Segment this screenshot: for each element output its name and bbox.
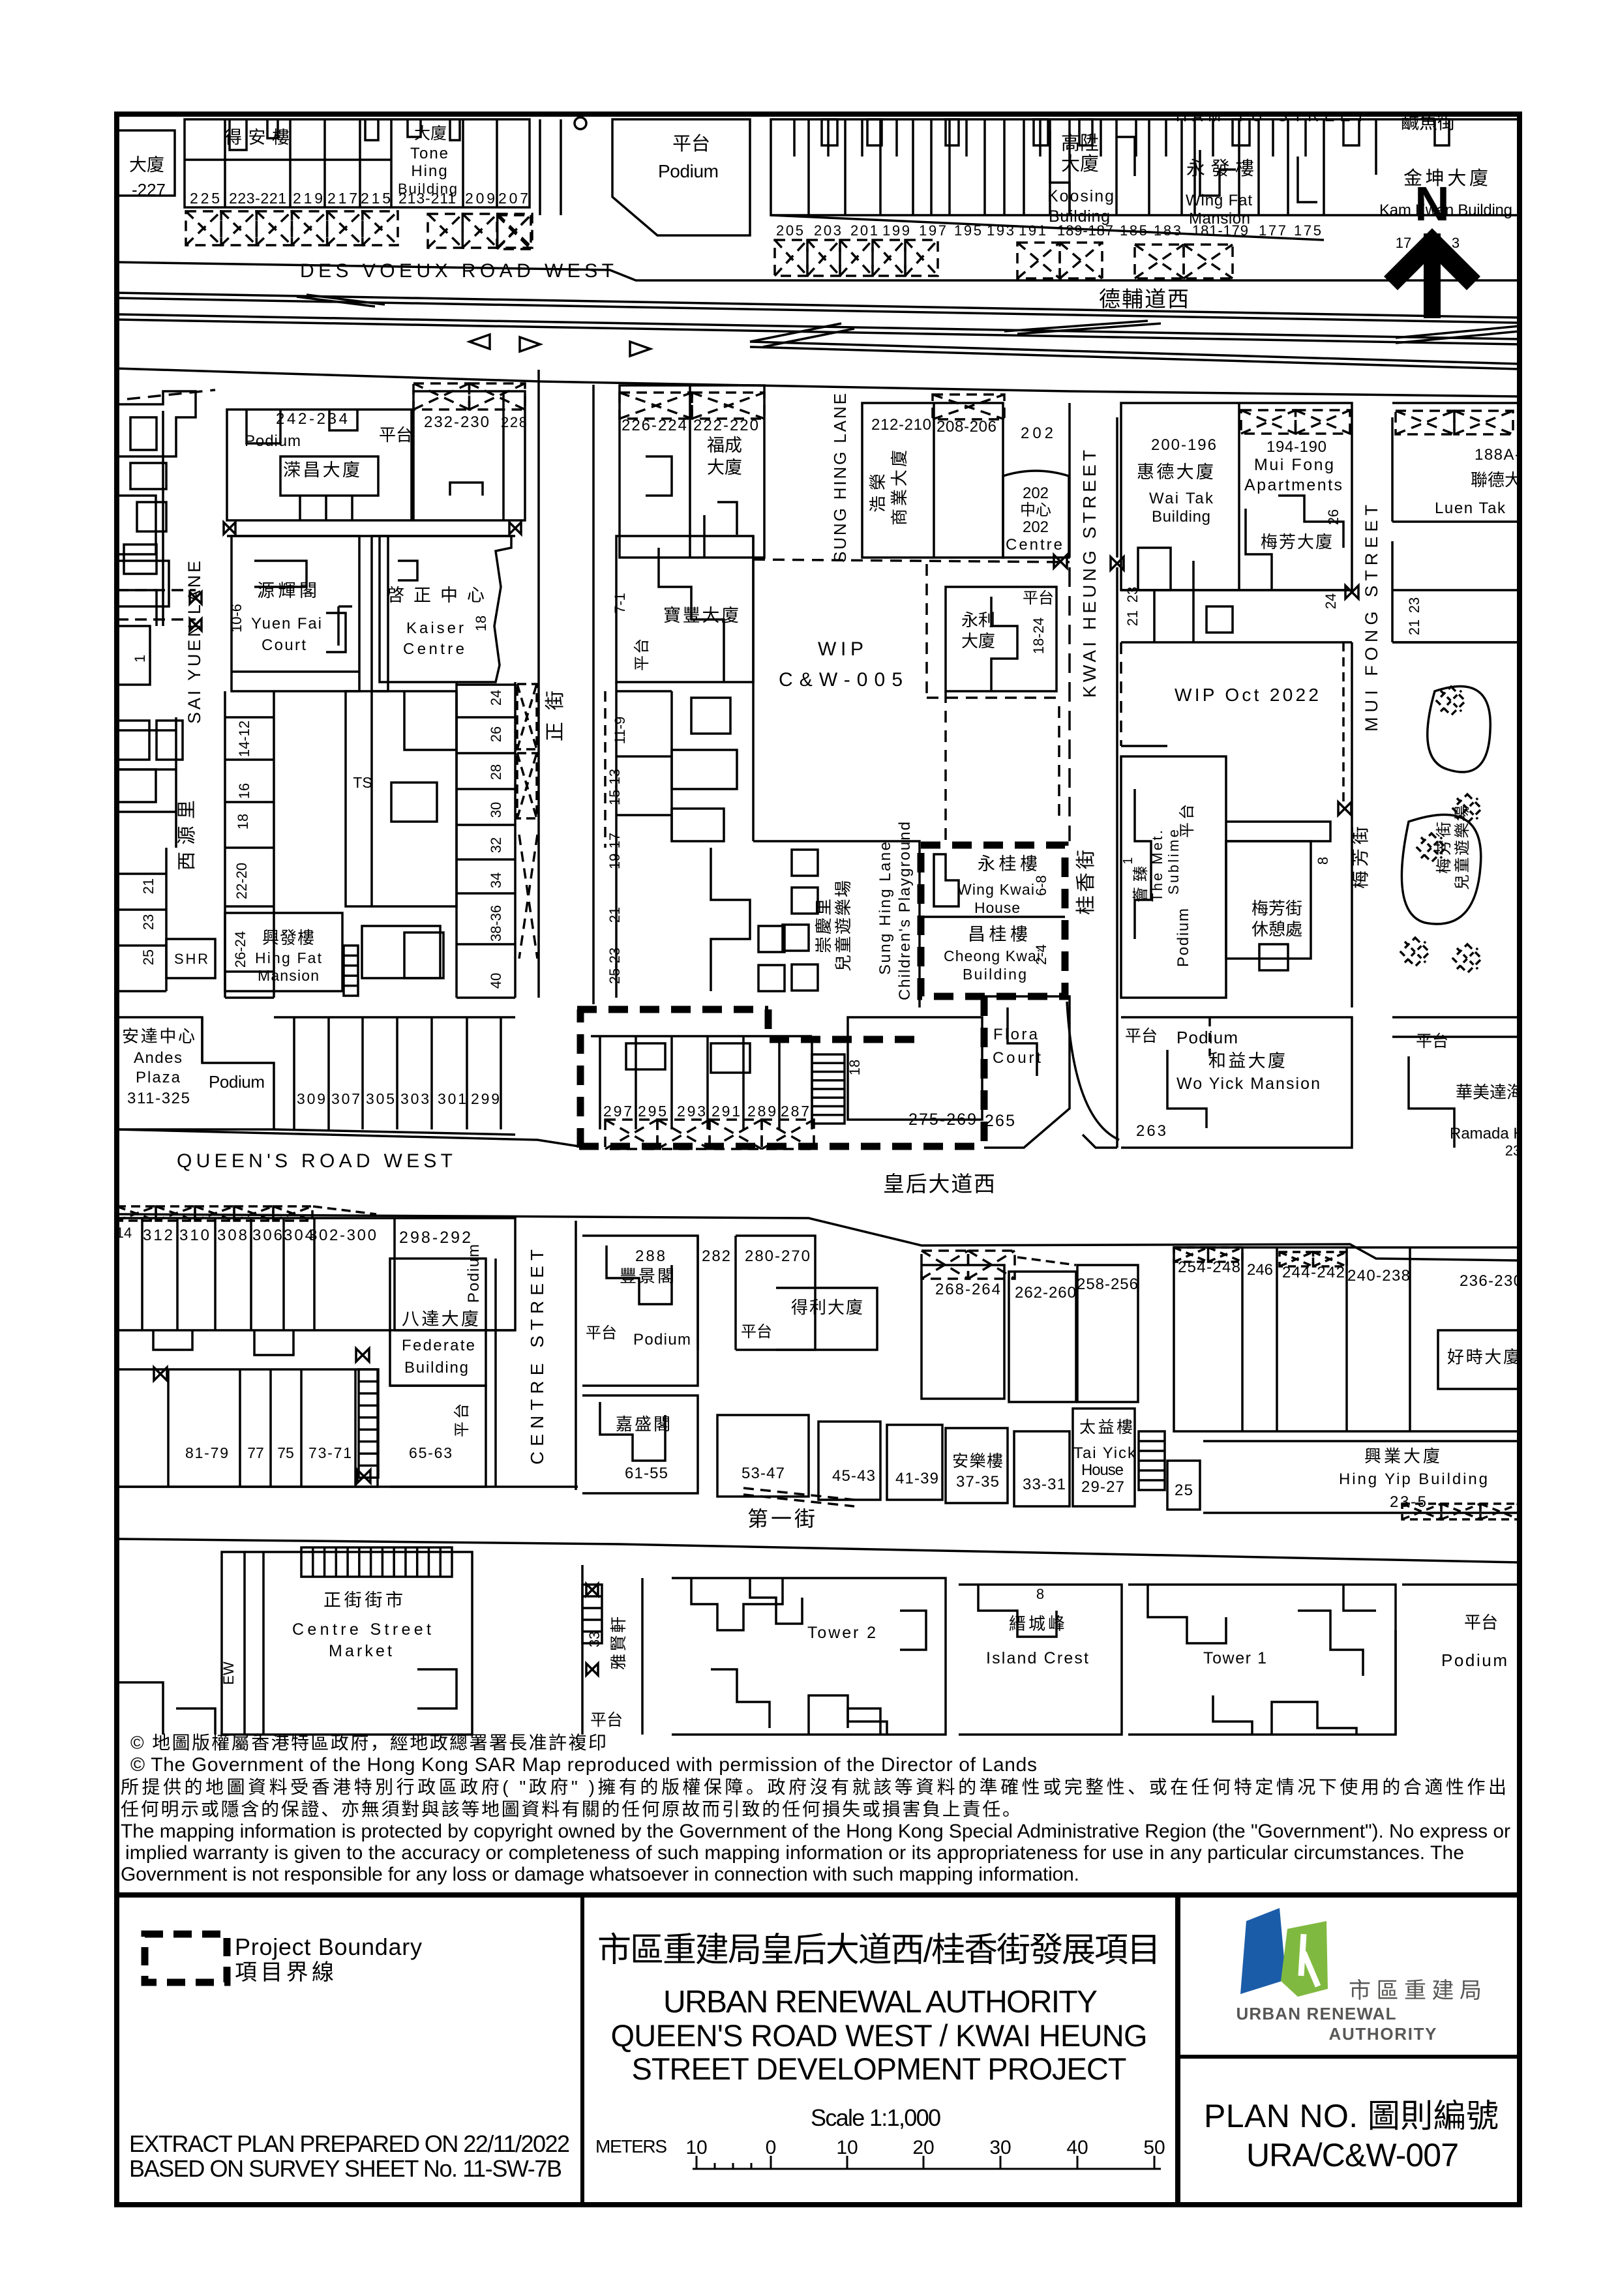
svg-text:任何明示或隱含的保證、亦無須對與該等地圖資料有關的任何原故而: 任何明示或隱含的保證、亦無須對與該等地圖資料有關的任何原故而引致的任何損失或損害… bbox=[121, 1799, 1021, 1819]
svg-text:40: 40 bbox=[488, 973, 504, 989]
svg-text:平台: 平台 bbox=[1125, 1027, 1158, 1045]
svg-text:西源里: 西源里 bbox=[176, 800, 198, 871]
svg-text:33-31: 33-31 bbox=[1023, 1476, 1066, 1493]
svg-text:Yuen Fai: Yuen Fai bbox=[251, 615, 323, 633]
svg-text:Centre: Centre bbox=[403, 640, 466, 658]
svg-text:梅芳街: 梅芳街 bbox=[1435, 822, 1453, 874]
svg-text:大廈: 大廈 bbox=[707, 458, 742, 477]
svg-text:37-35: 37-35 bbox=[956, 1473, 999, 1491]
svg-text:永發樓: 永發樓 bbox=[1186, 158, 1254, 179]
svg-text:Podium: Podium bbox=[1175, 908, 1192, 967]
svg-text:223-221: 223-221 bbox=[229, 190, 286, 207]
svg-text:Court: Court bbox=[993, 1049, 1042, 1067]
svg-text:10: 10 bbox=[685, 2137, 707, 2158]
svg-text:201: 201 bbox=[850, 222, 878, 239]
svg-text:大廈: 大廈 bbox=[961, 631, 995, 651]
svg-text:18-24: 18-24 bbox=[1030, 618, 1047, 654]
svg-text:中心: 中心 bbox=[1020, 501, 1051, 519]
svg-text:Tai Yick: Tai Yick bbox=[1073, 1444, 1136, 1462]
svg-text:61-55: 61-55 bbox=[625, 1465, 668, 1482]
svg-text:第一街: 第一街 bbox=[747, 1507, 815, 1530]
svg-text:House: House bbox=[1081, 1461, 1124, 1479]
svg-text:Hing Yip Building: Hing Yip Building bbox=[1339, 1470, 1489, 1488]
svg-text:18: 18 bbox=[473, 616, 489, 631]
svg-text:市區重建局: 市區重建局 bbox=[1349, 1978, 1482, 2003]
svg-text:183: 183 bbox=[1154, 222, 1181, 239]
svg-text:306: 306 bbox=[252, 1227, 282, 1244]
svg-text:215: 215 bbox=[361, 190, 391, 207]
svg-text:Podium: Podium bbox=[245, 432, 302, 450]
svg-text:Podium: Podium bbox=[1441, 1650, 1509, 1670]
svg-text:梅芳大廈: 梅芳大廈 bbox=[1261, 532, 1332, 552]
svg-text:21: 21 bbox=[1406, 619, 1422, 635]
svg-text:平台: 平台 bbox=[379, 425, 413, 445]
svg-text:Project Boundary: Project Boundary bbox=[235, 1933, 423, 1960]
svg-text:28: 28 bbox=[488, 764, 504, 780]
svg-text:301: 301 bbox=[438, 1090, 466, 1107]
svg-text:295: 295 bbox=[638, 1103, 667, 1120]
svg-text:Building: Building bbox=[404, 1359, 470, 1377]
svg-text:26: 26 bbox=[488, 726, 504, 742]
svg-text:Koosing: Koosing bbox=[1047, 187, 1115, 205]
svg-text:市區重建局皇后大道西/桂香街發展項目: 市區重建局皇后大道西/桂香街發展項目 bbox=[597, 1931, 1161, 1969]
svg-text:太益樓: 太益樓 bbox=[1079, 1418, 1133, 1437]
svg-text:PLAN NO. 圖則編號: PLAN NO. 圖則編號 bbox=[1204, 2098, 1499, 2134]
svg-text:312: 312 bbox=[143, 1227, 173, 1244]
svg-text:203: 203 bbox=[814, 222, 841, 239]
svg-text:永桂樓: 永桂樓 bbox=[978, 854, 1038, 874]
svg-text:308: 308 bbox=[217, 1227, 247, 1244]
svg-text:26-24: 26-24 bbox=[232, 931, 248, 968]
svg-text:Federate: Federate bbox=[402, 1337, 476, 1354]
svg-text:297: 297 bbox=[603, 1103, 632, 1120]
svg-text:299: 299 bbox=[471, 1090, 500, 1107]
svg-text:1: 1 bbox=[1121, 857, 1135, 864]
svg-text:EXTRACT PLAN PREPARED ON 22/11: EXTRACT PLAN PREPARED ON 22/11/2022 bbox=[129, 2130, 570, 2157]
svg-text:平台: 平台 bbox=[1464, 1613, 1498, 1632]
svg-text:大廈: 大廈 bbox=[414, 125, 447, 143]
svg-text:Island Crest: Island Crest bbox=[986, 1649, 1090, 1667]
svg-text:73-71: 73-71 bbox=[308, 1444, 352, 1461]
svg-text:81-79: 81-79 bbox=[185, 1444, 228, 1461]
svg-text:桂香街: 桂香街 bbox=[1075, 850, 1097, 915]
svg-text:38-36: 38-36 bbox=[488, 905, 504, 942]
svg-text:Scale 1:1,000: Scale 1:1,000 bbox=[811, 2104, 941, 2131]
svg-text:207: 207 bbox=[498, 190, 528, 207]
svg-text:30: 30 bbox=[488, 802, 504, 818]
svg-text:19-17: 19-17 bbox=[607, 833, 623, 869]
svg-text:293: 293 bbox=[677, 1103, 706, 1120]
svg-text:262-260: 262-260 bbox=[1015, 1284, 1076, 1302]
svg-text:Wo Yick Mansion: Wo Yick Mansion bbox=[1176, 1075, 1321, 1093]
svg-text:77: 77 bbox=[247, 1444, 264, 1461]
svg-text:217: 217 bbox=[327, 190, 357, 207]
svg-text:20: 20 bbox=[912, 2137, 934, 2158]
svg-text:11-9: 11-9 bbox=[612, 717, 628, 744]
svg-text:Building: Building bbox=[963, 966, 1028, 983]
svg-text:21: 21 bbox=[140, 878, 157, 894]
svg-text:205: 205 bbox=[776, 222, 803, 239]
svg-text:WIP Oct 2022: WIP Oct 2022 bbox=[1175, 685, 1321, 705]
svg-text:© 地圖版權屬香港特區政府，經地政總署署長准許複印: © 地圖版權屬香港特區政府，經地政總署署長准許複印 bbox=[130, 1733, 607, 1753]
svg-text:23: 23 bbox=[140, 914, 157, 930]
svg-text:Wing Kwai: Wing Kwai bbox=[957, 881, 1036, 898]
svg-text:休憩處: 休憩處 bbox=[1251, 919, 1302, 939]
svg-text:昌桂樓: 昌桂樓 bbox=[968, 925, 1028, 944]
svg-text:AUTHORITY: AUTHORITY bbox=[1329, 2024, 1437, 2044]
svg-text:梅芳街: 梅芳街 bbox=[1251, 899, 1302, 918]
svg-text:安樂樓: 安樂樓 bbox=[952, 1452, 1003, 1470]
svg-text:307: 307 bbox=[331, 1090, 360, 1107]
svg-text:嘉盛閣: 嘉盛閣 bbox=[616, 1414, 670, 1434]
svg-text:21: 21 bbox=[607, 907, 623, 923]
svg-text:282: 282 bbox=[702, 1247, 730, 1265]
svg-text:Podium: Podium bbox=[209, 1072, 266, 1092]
svg-text:10: 10 bbox=[836, 2137, 858, 2158]
svg-text:Plaza: Plaza bbox=[136, 1069, 181, 1086]
svg-text:263: 263 bbox=[1136, 1122, 1166, 1140]
svg-text:Andes: Andes bbox=[134, 1049, 183, 1067]
svg-text:75: 75 bbox=[277, 1444, 294, 1461]
svg-text:大廈: 大廈 bbox=[1061, 153, 1099, 175]
svg-text:29-27: 29-27 bbox=[1081, 1478, 1124, 1496]
svg-text:Hing: Hing bbox=[411, 162, 448, 180]
svg-text:18: 18 bbox=[235, 814, 251, 829]
svg-text:福成: 福成 bbox=[707, 436, 742, 455]
svg-text:199: 199 bbox=[882, 222, 910, 239]
svg-text:雅賢軒: 雅賢軒 bbox=[610, 1617, 628, 1670]
svg-text:25-23: 25-23 bbox=[607, 947, 623, 984]
svg-text:縉城峰: 縉城峰 bbox=[1009, 1614, 1065, 1633]
svg-text:興發樓: 興發樓 bbox=[262, 928, 314, 947]
svg-text:TS: TS bbox=[353, 774, 372, 791]
svg-text:197: 197 bbox=[919, 222, 946, 239]
svg-text:265: 265 bbox=[985, 1112, 1015, 1130]
svg-text:30: 30 bbox=[989, 2137, 1011, 2158]
svg-text:平台: 平台 bbox=[1023, 589, 1054, 607]
svg-text:7-1: 7-1 bbox=[612, 593, 628, 614]
svg-text:228: 228 bbox=[501, 414, 527, 430]
svg-text:平台: 平台 bbox=[1416, 1032, 1448, 1051]
svg-text:10-6: 10-6 bbox=[228, 604, 245, 633]
svg-text:SUNG HING LANE: SUNG HING LANE bbox=[830, 393, 850, 563]
svg-text:聯德大: 聯德大 bbox=[1471, 470, 1521, 490]
svg-text:188A-: 188A- bbox=[1475, 446, 1520, 464]
svg-text:309: 309 bbox=[297, 1090, 325, 1107]
svg-text:URBAN RENEWAL: URBAN RENEWAL bbox=[1236, 2004, 1396, 2023]
svg-text:平台: 平台 bbox=[741, 1323, 772, 1341]
svg-text:53-47: 53-47 bbox=[742, 1465, 785, 1482]
svg-text:0: 0 bbox=[766, 2137, 777, 2158]
svg-text:289: 289 bbox=[747, 1103, 776, 1120]
svg-text:Children's Playground: Children's Playground bbox=[896, 822, 914, 1000]
svg-text:40: 40 bbox=[1066, 2137, 1088, 2158]
svg-text:Building: Building bbox=[1049, 207, 1111, 226]
svg-text:Podium: Podium bbox=[658, 161, 721, 181]
svg-text:41-39: 41-39 bbox=[895, 1470, 938, 1487]
svg-text:兒童遊樂場: 兒童遊樂場 bbox=[1454, 805, 1471, 890]
svg-text:288: 288 bbox=[635, 1247, 665, 1265]
svg-text:高陞: 高陞 bbox=[1061, 132, 1099, 154]
svg-text:N: N bbox=[1415, 177, 1449, 231]
svg-text:21: 21 bbox=[1124, 610, 1141, 626]
svg-text:2-4: 2-4 bbox=[1033, 944, 1049, 965]
svg-text:25: 25 bbox=[140, 949, 157, 965]
svg-text:豐景閣: 豐景閣 bbox=[620, 1266, 674, 1286]
svg-text:SAI YUEN LANE: SAI YUEN LANE bbox=[185, 561, 204, 724]
svg-text:Wai Tak: Wai Tak bbox=[1149, 490, 1214, 507]
svg-text:Flora: Flora bbox=[993, 1026, 1039, 1043]
svg-text:-227: -227 bbox=[132, 180, 166, 200]
svg-text:16: 16 bbox=[236, 783, 252, 799]
svg-text:KWAI HEUNG STREET: KWAI HEUNG STREET bbox=[1079, 450, 1100, 698]
svg-text:METERS: METERS bbox=[595, 2136, 667, 2156]
svg-text:219: 219 bbox=[293, 190, 323, 207]
svg-text:© The Government of the Hong: © The Government of the Hong Kong SAR Ma… bbox=[130, 1754, 1037, 1776]
svg-text:22-20: 22-20 bbox=[233, 863, 250, 899]
svg-text:平台: 平台 bbox=[590, 1711, 623, 1729]
svg-text:287: 287 bbox=[781, 1103, 809, 1120]
svg-text:華美達海: 華美達海 bbox=[1456, 1082, 1523, 1102]
svg-text:Cheong Kwai: Cheong Kwai bbox=[944, 947, 1041, 964]
svg-text:225: 225 bbox=[190, 190, 220, 207]
svg-text:Podium: Podium bbox=[1176, 1028, 1239, 1047]
svg-text:23-5: 23-5 bbox=[1390, 1493, 1426, 1511]
svg-text:QUEEN'S ROAD WEST / KWAI HEUNG: QUEEN'S ROAD WEST / KWAI HEUNG bbox=[611, 2018, 1148, 2053]
svg-text:BASED ON SURVEY SHEET No. 11-S: BASED ON SURVEY SHEET No. 11-SW-7B bbox=[129, 2155, 562, 2182]
svg-text:得利大廈: 得利大廈 bbox=[791, 1298, 863, 1317]
svg-text:DES VOEUX ROAD WEST: DES VOEUX ROAD WEST bbox=[300, 260, 620, 282]
svg-text:25: 25 bbox=[1175, 1482, 1193, 1499]
svg-text:212-210: 212-210 bbox=[871, 416, 931, 434]
svg-text:implied warranty is given to t: implied warranty is given to the accurac… bbox=[125, 1842, 1464, 1864]
svg-text:32: 32 bbox=[488, 837, 504, 853]
svg-text:QUEEN'S ROAD WEST: QUEEN'S ROAD WEST bbox=[177, 1150, 458, 1172]
svg-text:平台: 平台 bbox=[586, 1324, 617, 1342]
svg-text:17: 17 bbox=[1396, 235, 1411, 251]
svg-text:8: 8 bbox=[1036, 1586, 1044, 1602]
svg-text:Mui Fong: Mui Fong bbox=[1254, 456, 1335, 474]
svg-text:310: 310 bbox=[179, 1227, 209, 1244]
svg-text:Market: Market bbox=[329, 1642, 394, 1660]
svg-text:Luen Tak: Luen Tak bbox=[1435, 499, 1506, 517]
svg-text:URBAN RENEWAL AUTHORITY: URBAN RENEWAL AUTHORITY bbox=[663, 1985, 1098, 2020]
svg-text:Mansion: Mansion bbox=[1189, 210, 1251, 228]
svg-text:1: 1 bbox=[132, 655, 148, 663]
svg-text:15-13: 15-13 bbox=[607, 769, 623, 805]
svg-text:Podium: Podium bbox=[633, 1331, 692, 1349]
svg-text:246: 246 bbox=[1247, 1261, 1273, 1279]
svg-text:大廈: 大廈 bbox=[129, 155, 164, 175]
svg-text:209: 209 bbox=[465, 190, 495, 207]
svg-text:Podium: Podium bbox=[465, 1244, 483, 1303]
svg-text:Centre Street: Centre Street bbox=[292, 1620, 433, 1639]
svg-text:175: 175 bbox=[1294, 222, 1321, 239]
svg-text:208-206: 208-206 bbox=[936, 418, 996, 436]
svg-text:The mapping information is pro: The mapping information is protected by … bbox=[121, 1821, 1510, 1842]
svg-text:65-63: 65-63 bbox=[409, 1444, 452, 1461]
svg-text:6-8: 6-8 bbox=[1033, 875, 1049, 896]
svg-text:Wing Fat: Wing Fat bbox=[1186, 192, 1253, 209]
svg-text:213-211: 213-211 bbox=[398, 190, 456, 207]
svg-text:兒童遊樂場: 兒童遊樂場 bbox=[833, 880, 853, 972]
svg-text:305: 305 bbox=[366, 1090, 395, 1107]
svg-text:Apartments: Apartments bbox=[1244, 476, 1343, 494]
svg-text:202: 202 bbox=[1023, 485, 1049, 502]
svg-text:STREET DEVELOPMENT PROJECT: STREET DEVELOPMENT PROJECT bbox=[632, 2051, 1127, 2086]
svg-text:Tower 2: Tower 2 bbox=[807, 1624, 878, 1642]
svg-text:皇后大道西: 皇后大道西 bbox=[883, 1172, 995, 1196]
svg-text:Hing Fat: Hing Fat bbox=[255, 949, 323, 966]
svg-text:永利: 永利 bbox=[961, 610, 995, 630]
svg-text:45-43: 45-43 bbox=[832, 1467, 875, 1485]
svg-text:URA/C&W-007: URA/C&W-007 bbox=[1246, 2137, 1459, 2173]
svg-text:WIP: WIP bbox=[818, 638, 867, 660]
svg-text:Government is not responsible: Government is not responsible for any lo… bbox=[121, 1864, 1079, 1885]
svg-text:Mansion: Mansion bbox=[258, 967, 320, 984]
svg-text:所提供的地圖資料受香港特別行政區政府( "政府" )擁有: 所提供的地圖資料受香港特別行政區政府( "政府" )擁有的版權保障。政府沒有就該… bbox=[121, 1777, 1506, 1797]
svg-text:Tower 1: Tower 1 bbox=[1203, 1649, 1268, 1667]
svg-text:191: 191 bbox=[1019, 222, 1046, 239]
svg-text:得安樓: 得安樓 bbox=[224, 128, 290, 147]
svg-text:291: 291 bbox=[712, 1103, 740, 1120]
svg-text:House: House bbox=[974, 899, 1021, 916]
svg-text:23: 23 bbox=[1406, 597, 1422, 613]
svg-text:23: 23 bbox=[1124, 587, 1141, 603]
svg-text:33: 33 bbox=[586, 1632, 603, 1647]
svg-text:Building: Building bbox=[1152, 508, 1212, 526]
svg-text:8: 8 bbox=[1315, 857, 1331, 865]
svg-text:24: 24 bbox=[488, 690, 504, 706]
svg-text:50: 50 bbox=[1143, 2137, 1165, 2158]
svg-text:源輝閣: 源輝閣 bbox=[257, 581, 317, 601]
svg-text:202: 202 bbox=[1021, 425, 1053, 442]
svg-text:平台: 平台 bbox=[672, 133, 710, 155]
svg-text:303: 303 bbox=[400, 1090, 429, 1107]
svg-text:202: 202 bbox=[1023, 518, 1049, 536]
svg-text:258-256: 258-256 bbox=[1077, 1275, 1138, 1293]
svg-text:24: 24 bbox=[1323, 593, 1339, 609]
svg-text:崇慶里: 崇慶里 bbox=[814, 899, 833, 953]
svg-text:Tone: Tone bbox=[410, 145, 449, 162]
svg-text:14-12: 14-12 bbox=[236, 721, 252, 757]
svg-text:SHR: SHR bbox=[174, 951, 208, 967]
svg-text:34: 34 bbox=[488, 872, 504, 888]
svg-text:Court: Court bbox=[262, 636, 307, 654]
svg-text:3: 3 bbox=[1452, 235, 1460, 251]
svg-text:194-190: 194-190 bbox=[1266, 438, 1326, 456]
svg-text:Centre: Centre bbox=[1006, 536, 1063, 554]
